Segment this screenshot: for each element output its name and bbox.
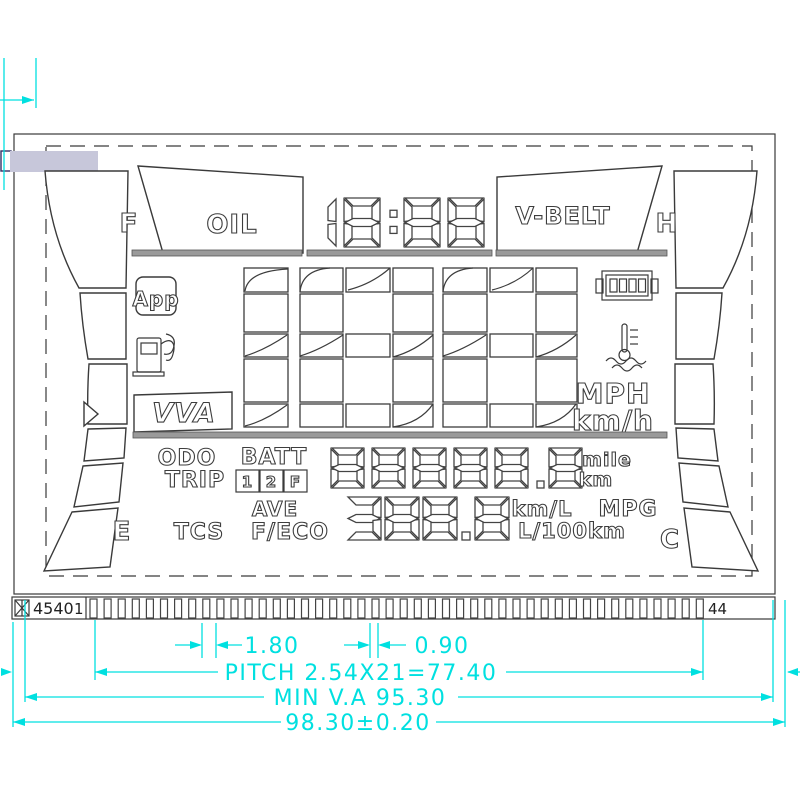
connector-pin bbox=[485, 599, 492, 618]
odometer-display bbox=[331, 448, 582, 488]
lcd-panel-drawing: F E H C OIL V-BELT bbox=[0, 0, 800, 800]
connector-pin bbox=[358, 599, 365, 618]
connector-pin bbox=[287, 599, 294, 618]
connector-pin bbox=[499, 599, 506, 618]
speed-display bbox=[244, 268, 577, 427]
last-pin-label: 44 bbox=[708, 600, 727, 618]
connector-pin bbox=[132, 599, 139, 618]
top-divider-bar bbox=[132, 250, 302, 256]
dim-pin-width: 0.90 bbox=[415, 634, 470, 659]
temp-hot-label: H bbox=[656, 209, 679, 239]
oil-label: OIL bbox=[206, 210, 257, 240]
connector-pin bbox=[400, 599, 407, 618]
batt-mode-2: 2 bbox=[266, 473, 277, 491]
dim-min-va: MIN V.A 95.30 bbox=[274, 686, 447, 711]
manufacturer-logo-icon bbox=[15, 600, 29, 616]
batt-label: BATT bbox=[241, 445, 308, 470]
temp-gauge-arc bbox=[674, 171, 758, 571]
speed-digit-8b bbox=[443, 268, 577, 427]
vbelt-label: V-BELT bbox=[515, 202, 610, 230]
unit-mile-label: mile bbox=[582, 449, 632, 471]
connector-pin bbox=[189, 599, 196, 618]
connector-pin bbox=[457, 599, 464, 618]
coolant-temp-icon bbox=[606, 324, 646, 371]
fuel-empty-label: E bbox=[113, 517, 132, 547]
connector-pin bbox=[161, 599, 168, 618]
connector-pin bbox=[513, 599, 520, 618]
feco-label: F/ECO bbox=[251, 520, 329, 545]
connector-pin bbox=[217, 599, 224, 618]
connector-pin bbox=[598, 599, 605, 618]
connector-pin bbox=[175, 599, 182, 618]
connector-pin bbox=[330, 599, 337, 618]
fuel-pump-icon bbox=[133, 334, 174, 376]
connector-pin bbox=[245, 599, 252, 618]
vva-label: VVA bbox=[152, 398, 216, 429]
connector-pin bbox=[668, 599, 675, 618]
connector-pin bbox=[569, 599, 576, 618]
batt-mode-1: 1 bbox=[242, 473, 253, 491]
connector-pin bbox=[316, 599, 323, 618]
connector-pin bbox=[471, 599, 478, 618]
dim-overall-width: 98.30±0.20 bbox=[285, 711, 430, 736]
connector-pin bbox=[118, 599, 125, 618]
connector-pin bbox=[414, 599, 421, 618]
connector-pin bbox=[273, 599, 280, 618]
part-number: 4540 bbox=[33, 599, 74, 618]
trip-label: TRIP bbox=[165, 468, 225, 493]
glass-tab-box bbox=[1, 151, 11, 171]
connector-pin bbox=[104, 599, 111, 618]
ave-label: AVE bbox=[252, 497, 298, 521]
connector-pin bbox=[428, 599, 435, 618]
top-divider-bar bbox=[496, 250, 667, 256]
mid-divider-bar bbox=[133, 432, 667, 438]
batt-mode-f: F bbox=[290, 473, 301, 491]
connector-pin bbox=[231, 599, 238, 618]
connector-pin bbox=[654, 599, 661, 618]
tcs-label: TCS bbox=[174, 520, 224, 545]
connector-pin bbox=[302, 599, 309, 618]
connector-pin bbox=[386, 599, 393, 618]
top-divider-bar bbox=[307, 250, 492, 256]
connector-pin bbox=[696, 599, 703, 618]
app-label: App bbox=[132, 287, 179, 311]
connector-pin bbox=[90, 599, 97, 618]
dim-pitch-total: PITCH 2.54X21=77.40 bbox=[225, 661, 498, 686]
connector-strip: 4540 1 44 bbox=[12, 597, 775, 619]
speed-digit-8a bbox=[300, 268, 433, 427]
connector-pin bbox=[443, 599, 450, 618]
app-icon: App bbox=[132, 277, 179, 315]
connector-pin bbox=[146, 599, 153, 618]
unit-kml-label: km/L bbox=[512, 497, 573, 521]
connector-pins bbox=[90, 599, 703, 618]
connector-pin bbox=[555, 599, 562, 618]
vva-indicator: VVA bbox=[134, 392, 232, 432]
connector-pin bbox=[527, 599, 534, 618]
connector-pin bbox=[626, 599, 633, 618]
connector-pin bbox=[612, 599, 619, 618]
temp-cold-label: C bbox=[660, 525, 680, 555]
unit-l100-label: L/100km bbox=[518, 519, 626, 543]
speed-digit-1 bbox=[244, 268, 288, 427]
fuel-full-label: F bbox=[120, 209, 139, 239]
connector-pin bbox=[584, 599, 591, 618]
unit-km-label: km bbox=[579, 469, 613, 491]
connector-pin bbox=[541, 599, 548, 618]
batt-mode-boxes: 1 2 F bbox=[236, 470, 307, 492]
connector-pin bbox=[682, 599, 689, 618]
glass-tab bbox=[10, 151, 98, 172]
eco-display bbox=[348, 497, 509, 540]
connector-pin bbox=[372, 599, 379, 618]
connector-pin bbox=[259, 599, 266, 618]
dim-pin-pitch: 1.80 bbox=[245, 634, 300, 659]
connector-pin bbox=[640, 599, 647, 618]
battery-icon bbox=[596, 271, 658, 300]
connector-pin bbox=[203, 599, 210, 618]
clock-display bbox=[328, 198, 484, 247]
connector-pin bbox=[344, 599, 351, 618]
first-pin-label: 1 bbox=[74, 600, 84, 618]
fuel-gauge-arc bbox=[44, 171, 128, 571]
